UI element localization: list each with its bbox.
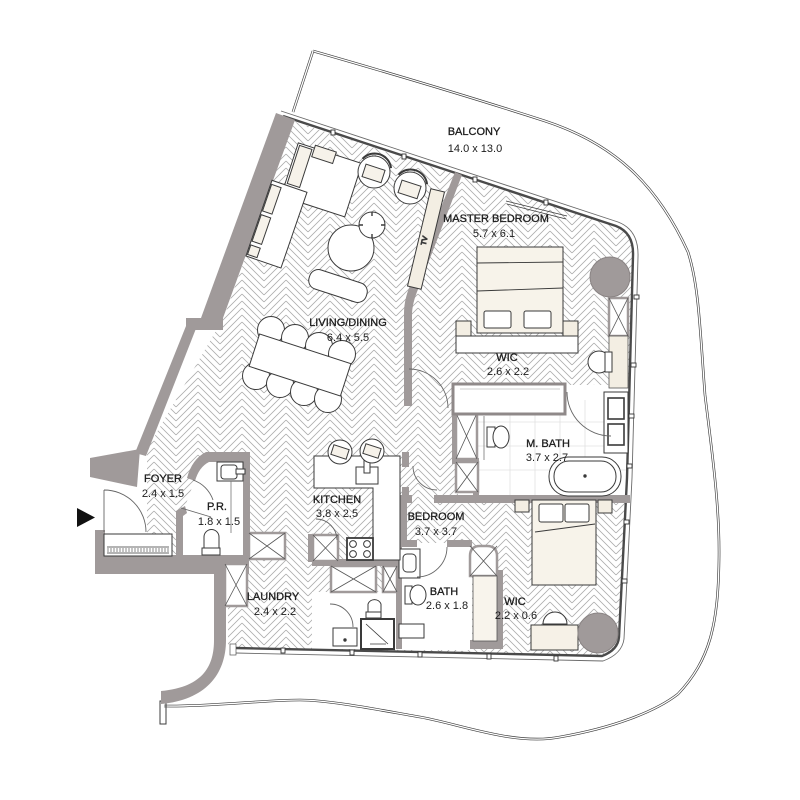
svg-text:MASTER BEDROOM: MASTER BEDROOM (443, 213, 549, 225)
svg-text:2.4 x 2.2: 2.4 x 2.2 (254, 606, 296, 618)
svg-text:WIC: WIC (504, 596, 525, 608)
svg-text:2.4 x 1.5: 2.4 x 1.5 (142, 488, 184, 500)
svg-text:14.0 x 13.0: 14.0 x 13.0 (448, 143, 502, 155)
svg-text:BATH: BATH (430, 586, 459, 598)
svg-text:2.6 x 1.8: 2.6 x 1.8 (426, 600, 468, 612)
svg-text:M. BATH: M. BATH (526, 438, 570, 450)
svg-text:BALCONY: BALCONY (448, 126, 501, 138)
svg-text:2.6 x 2.2: 2.6 x 2.2 (487, 366, 529, 378)
svg-text:P.R.: P.R. (207, 501, 227, 513)
svg-text:2.2 x 0.6: 2.2 x 0.6 (495, 610, 537, 622)
svg-text:3.8 x 2.5: 3.8 x 2.5 (316, 508, 358, 520)
svg-text:WIC: WIC (496, 352, 517, 364)
svg-text:5.7 x 6.1: 5.7 x 6.1 (473, 228, 515, 240)
svg-text:3.7 x 3.7: 3.7 x 3.7 (415, 526, 457, 538)
svg-text:1.8 x 1.5: 1.8 x 1.5 (198, 516, 240, 528)
svg-text:LAUNDRY: LAUNDRY (247, 591, 300, 603)
svg-text:3.7 x 2.7: 3.7 x 2.7 (526, 452, 568, 464)
svg-text:KITCHEN: KITCHEN (313, 494, 361, 506)
svg-text:6.4 x 5.5: 6.4 x 5.5 (327, 332, 369, 344)
svg-text:BEDROOM: BEDROOM (408, 511, 465, 523)
svg-text:LIVING/DINING: LIVING/DINING (309, 317, 387, 329)
svg-text:FOYER: FOYER (144, 473, 182, 485)
